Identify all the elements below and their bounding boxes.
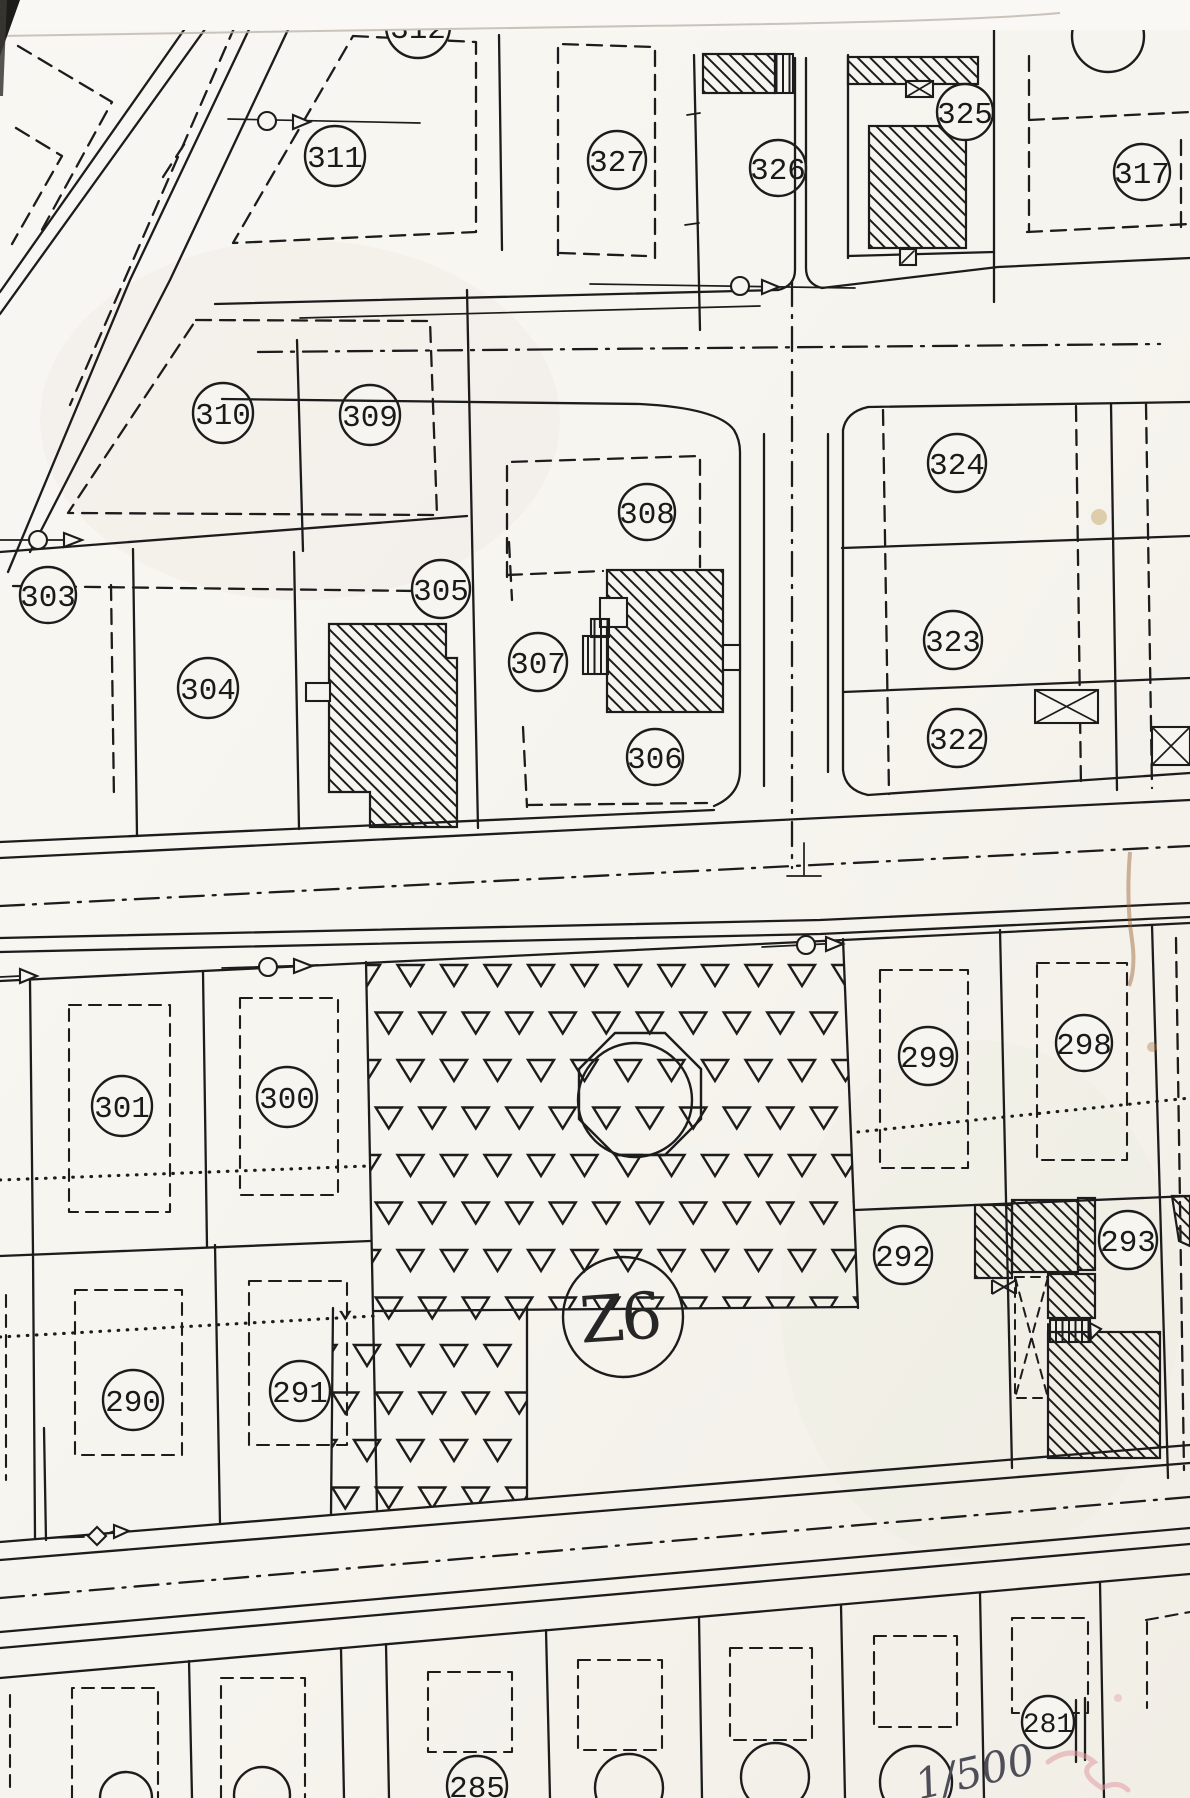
parcel-324-label: 324 bbox=[929, 449, 985, 484]
pink-pen-dot bbox=[1114, 1694, 1122, 1702]
small-square-symbol bbox=[900, 249, 916, 265]
parcel-290-label: 290 bbox=[105, 1386, 161, 1421]
building-striped-small bbox=[591, 619, 609, 637]
parcel-325-label: 325 bbox=[937, 98, 993, 133]
parcel-301-label: 301 bbox=[94, 1092, 150, 1127]
parcel-310-label: 310 bbox=[195, 399, 251, 434]
survey-point-icon bbox=[259, 958, 277, 976]
building-hatched bbox=[1048, 1274, 1095, 1318]
building-striped bbox=[775, 54, 793, 93]
parcel-291-label: 291 bbox=[272, 1377, 328, 1412]
stain-spot bbox=[1091, 509, 1107, 525]
parcel-309-label: 309 bbox=[342, 401, 398, 436]
parcel-327-label: 327 bbox=[589, 146, 645, 181]
parcel-285-label: 285 bbox=[449, 1772, 505, 1798]
triangle-pattern-area-lower bbox=[331, 1308, 527, 1515]
parcel-281-label: 281 bbox=[1023, 1710, 1073, 1741]
parcel-308-label: 308 bbox=[619, 498, 675, 533]
building-hatched bbox=[1012, 1200, 1078, 1272]
building-hatched-large bbox=[1048, 1332, 1160, 1458]
parcel-281: 281 bbox=[1022, 1696, 1074, 1748]
building-striped-small bbox=[583, 636, 608, 674]
building-hatched bbox=[607, 570, 723, 712]
zone-label: Z6 bbox=[577, 1279, 661, 1358]
building-hatched bbox=[975, 1205, 1012, 1278]
parcel-311-label: 311 bbox=[307, 142, 363, 177]
crossed-box-icon bbox=[906, 81, 933, 97]
map-canvas: 311 312 327 326 325 317 310 309 bbox=[0, 0, 1190, 1798]
survey-point-icon bbox=[258, 112, 276, 130]
building-hatched bbox=[703, 54, 775, 93]
parcel-293-label: 293 bbox=[1100, 1226, 1156, 1261]
parcel-306-label: 306 bbox=[627, 743, 683, 778]
building-hatched bbox=[1078, 1198, 1095, 1270]
survey-point-icon bbox=[797, 936, 815, 954]
stain-spot bbox=[1147, 1042, 1157, 1052]
crossed-box-icon bbox=[1035, 690, 1098, 723]
crossed-box-icon-partial bbox=[1152, 727, 1190, 765]
scanned-cadastral-map: 311 312 327 326 325 317 310 309 bbox=[0, 0, 1190, 1798]
building-hatched bbox=[869, 126, 966, 248]
parcel-299-label: 299 bbox=[900, 1042, 956, 1077]
paper-top-margin bbox=[0, 0, 1190, 30]
survey-point-icon bbox=[731, 277, 749, 295]
building-annex bbox=[306, 683, 330, 701]
parcel-307-label: 307 bbox=[510, 648, 566, 683]
parcel-323-label: 323 bbox=[925, 626, 981, 661]
survey-point-icon bbox=[29, 531, 47, 549]
parcel-305-label: 305 bbox=[413, 575, 469, 610]
building-hatched bbox=[848, 57, 978, 84]
parcel-303-label: 303 bbox=[20, 581, 76, 616]
parcel-300-label: 300 bbox=[259, 1083, 315, 1118]
parcel-298-label: 298 bbox=[1056, 1029, 1112, 1064]
triangle-pattern-area bbox=[366, 939, 857, 1311]
building-annex bbox=[723, 645, 740, 670]
parcel-304-label: 304 bbox=[180, 674, 236, 709]
parcel-326-label: 326 bbox=[750, 154, 806, 189]
parcel-317-label: 317 bbox=[1114, 158, 1170, 193]
parcel-292-label: 292 bbox=[875, 1241, 931, 1276]
parcel-322-label: 322 bbox=[929, 724, 985, 759]
